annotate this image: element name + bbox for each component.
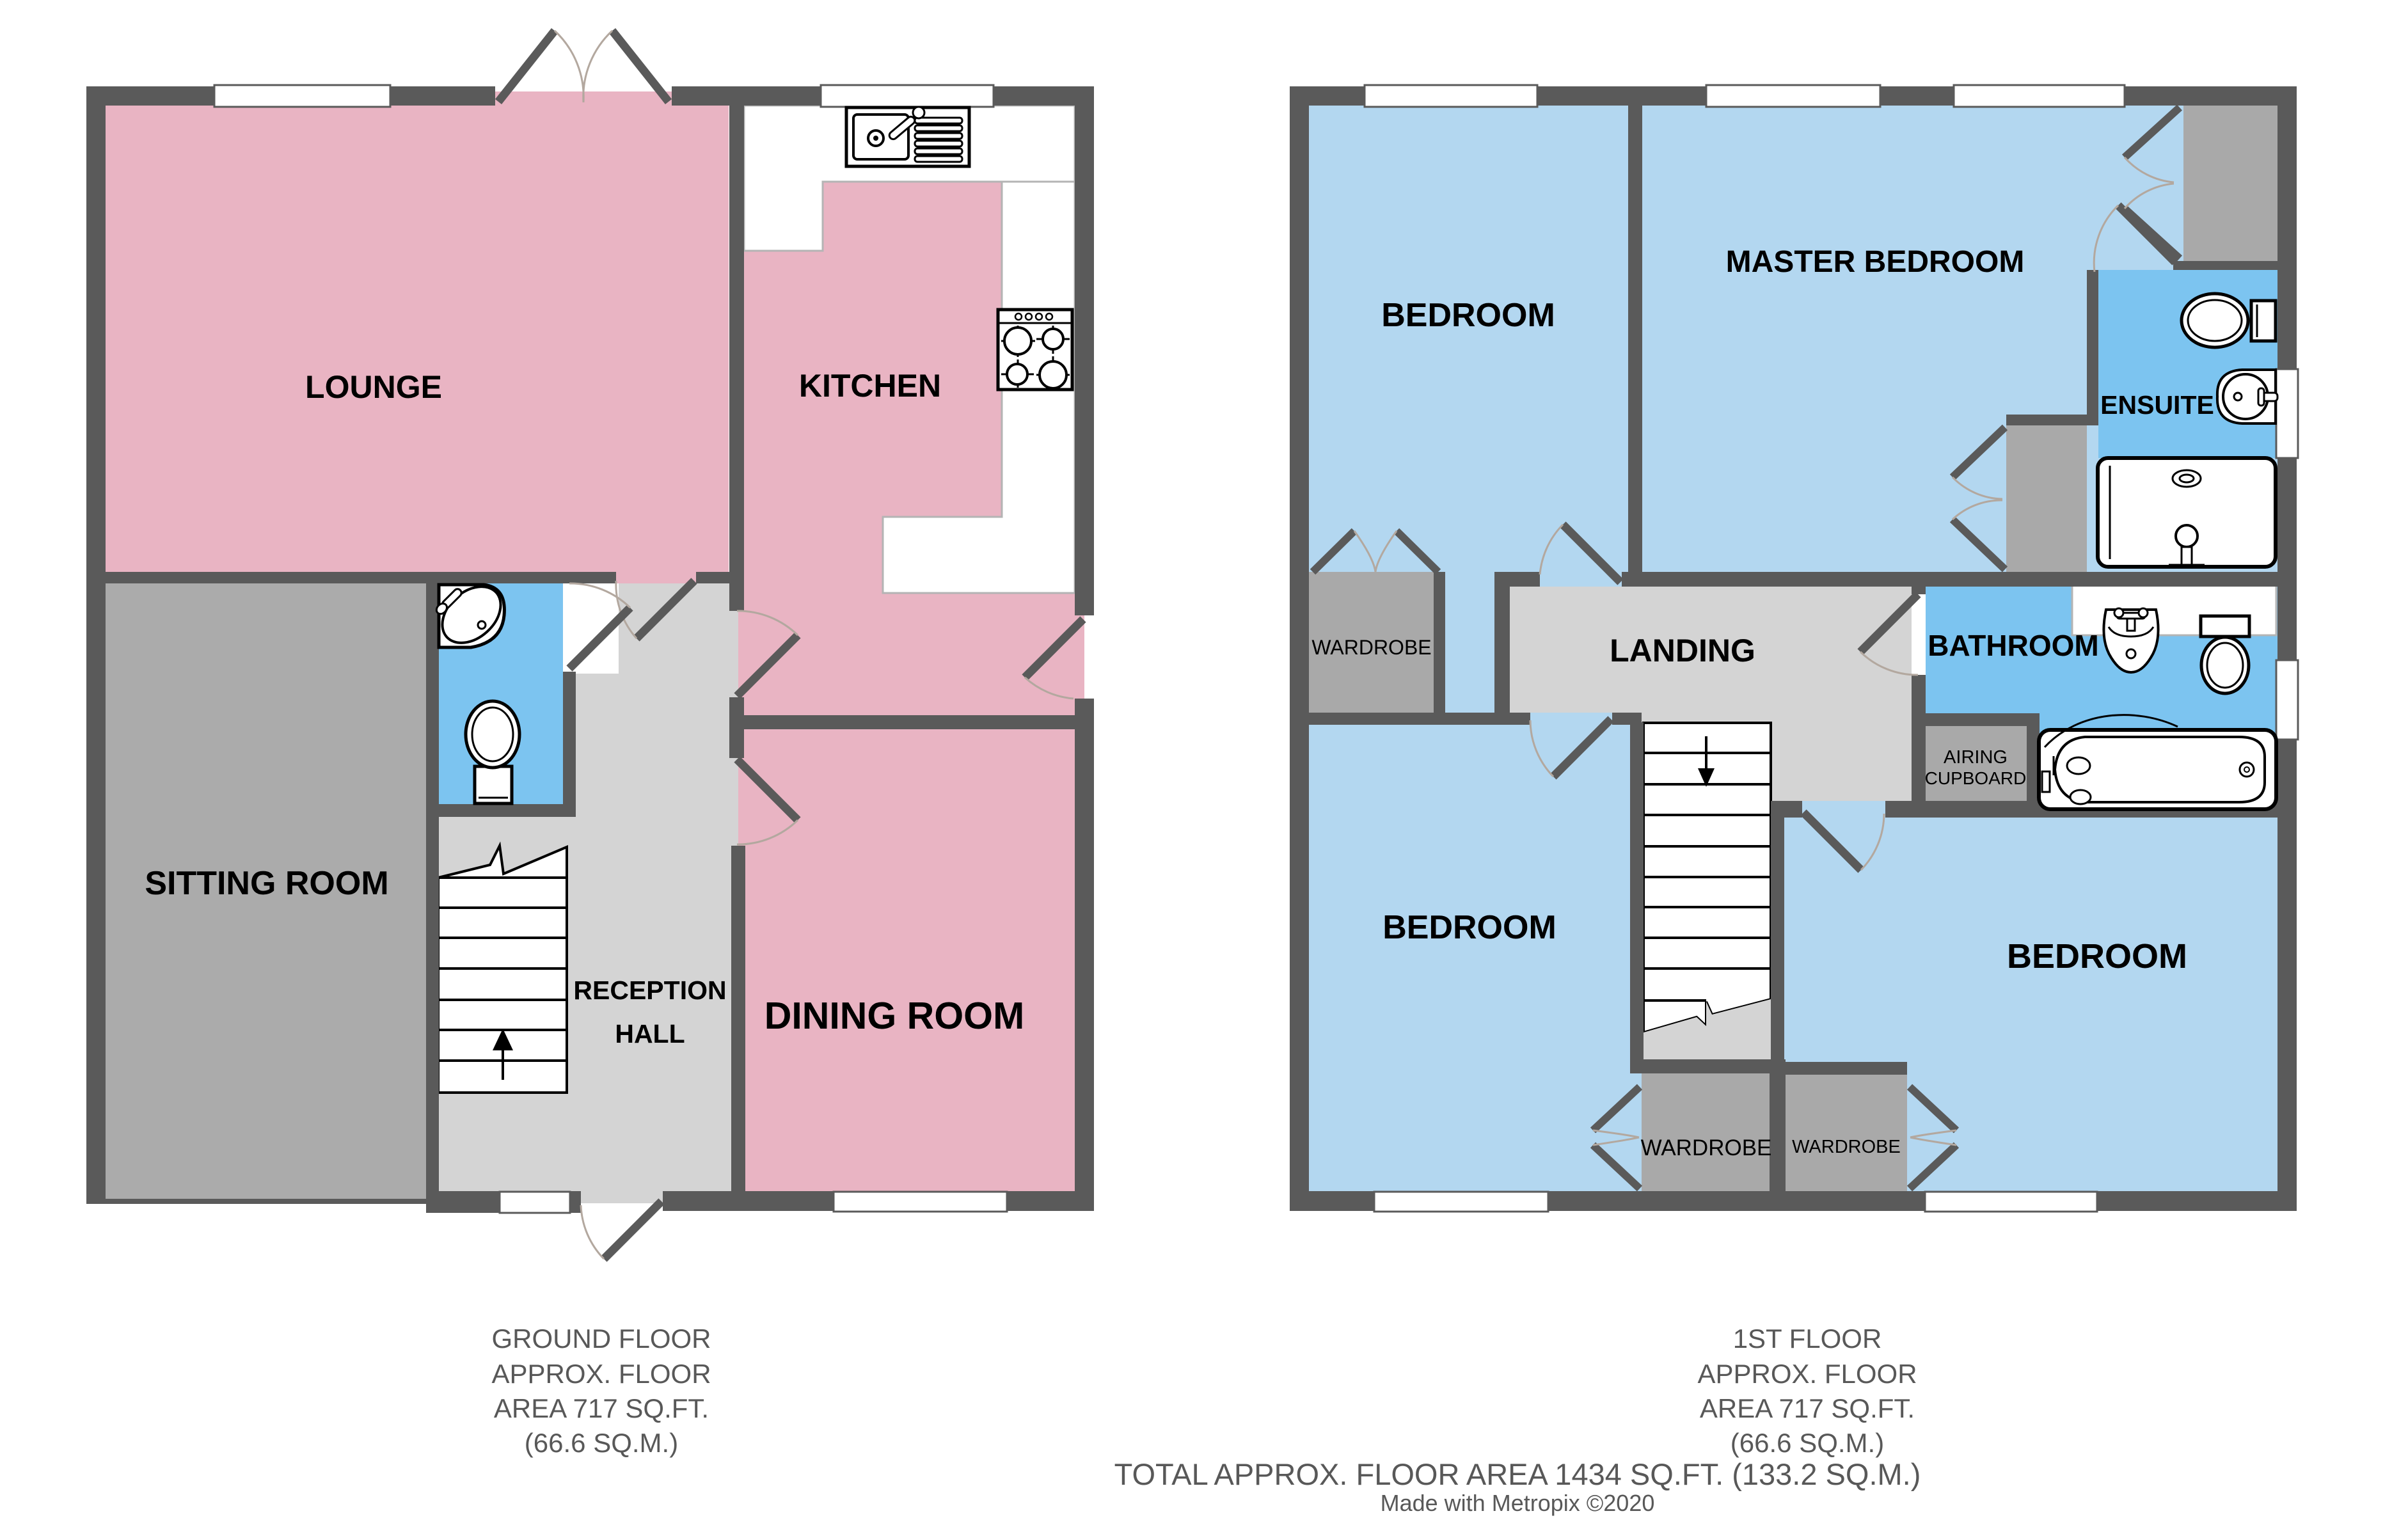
svg-text:CUPBOARD: CUPBOARD xyxy=(1925,768,2027,788)
svg-text:MASTER BEDROOM: MASTER BEDROOM xyxy=(1726,245,2025,279)
svg-text:1ST FLOOR: 1ST FLOOR xyxy=(1733,1324,1882,1354)
svg-text:HALL: HALL xyxy=(615,1019,685,1048)
svg-text:WARDROBE: WARDROBE xyxy=(1311,636,1431,659)
svg-text:RECEPTION: RECEPTION xyxy=(573,976,726,1005)
svg-text:Made with Metropix ©2020: Made with Metropix ©2020 xyxy=(1381,1490,1655,1516)
svg-text:APPROX. FLOOR: APPROX. FLOOR xyxy=(491,1359,711,1389)
svg-text:BEDROOM: BEDROOM xyxy=(1382,909,1556,946)
svg-text:BEDROOM: BEDROOM xyxy=(1381,297,1555,334)
svg-text:LOUNGE: LOUNGE xyxy=(305,369,442,405)
svg-text:LANDING: LANDING xyxy=(1610,633,1755,668)
svg-text:AREA 717 SQ.FT.: AREA 717 SQ.FT. xyxy=(494,1393,709,1423)
svg-text:APPROX. FLOOR: APPROX. FLOOR xyxy=(1697,1359,1917,1389)
svg-text:KITCHEN: KITCHEN xyxy=(799,368,941,404)
svg-text:GROUND FLOOR: GROUND FLOOR xyxy=(491,1324,711,1354)
svg-text:WARDROBE: WARDROBE xyxy=(1792,1137,1901,1157)
svg-text:TOTAL APPROX. FLOOR AREA 1434: TOTAL APPROX. FLOOR AREA 1434 SQ.FT. (13… xyxy=(1114,1457,1921,1491)
svg-text:DINING ROOM: DINING ROOM xyxy=(764,995,1024,1037)
svg-text:AREA 717 SQ.FT.: AREA 717 SQ.FT. xyxy=(1700,1393,1915,1423)
svg-text:ENSUITE: ENSUITE xyxy=(2100,390,2214,420)
svg-text:(66.6 SQ.M.): (66.6 SQ.M.) xyxy=(1731,1428,1884,1458)
svg-text:BEDROOM: BEDROOM xyxy=(2007,937,2187,976)
svg-text:(66.6 SQ.M.): (66.6 SQ.M.) xyxy=(525,1428,678,1458)
svg-text:SITTING ROOM: SITTING ROOM xyxy=(145,865,388,902)
svg-text:BATHROOM: BATHROOM xyxy=(1928,629,2098,662)
svg-text:WARDROBE: WARDROBE xyxy=(1641,1135,1772,1160)
svg-text:AIRING: AIRING xyxy=(1944,747,2008,768)
